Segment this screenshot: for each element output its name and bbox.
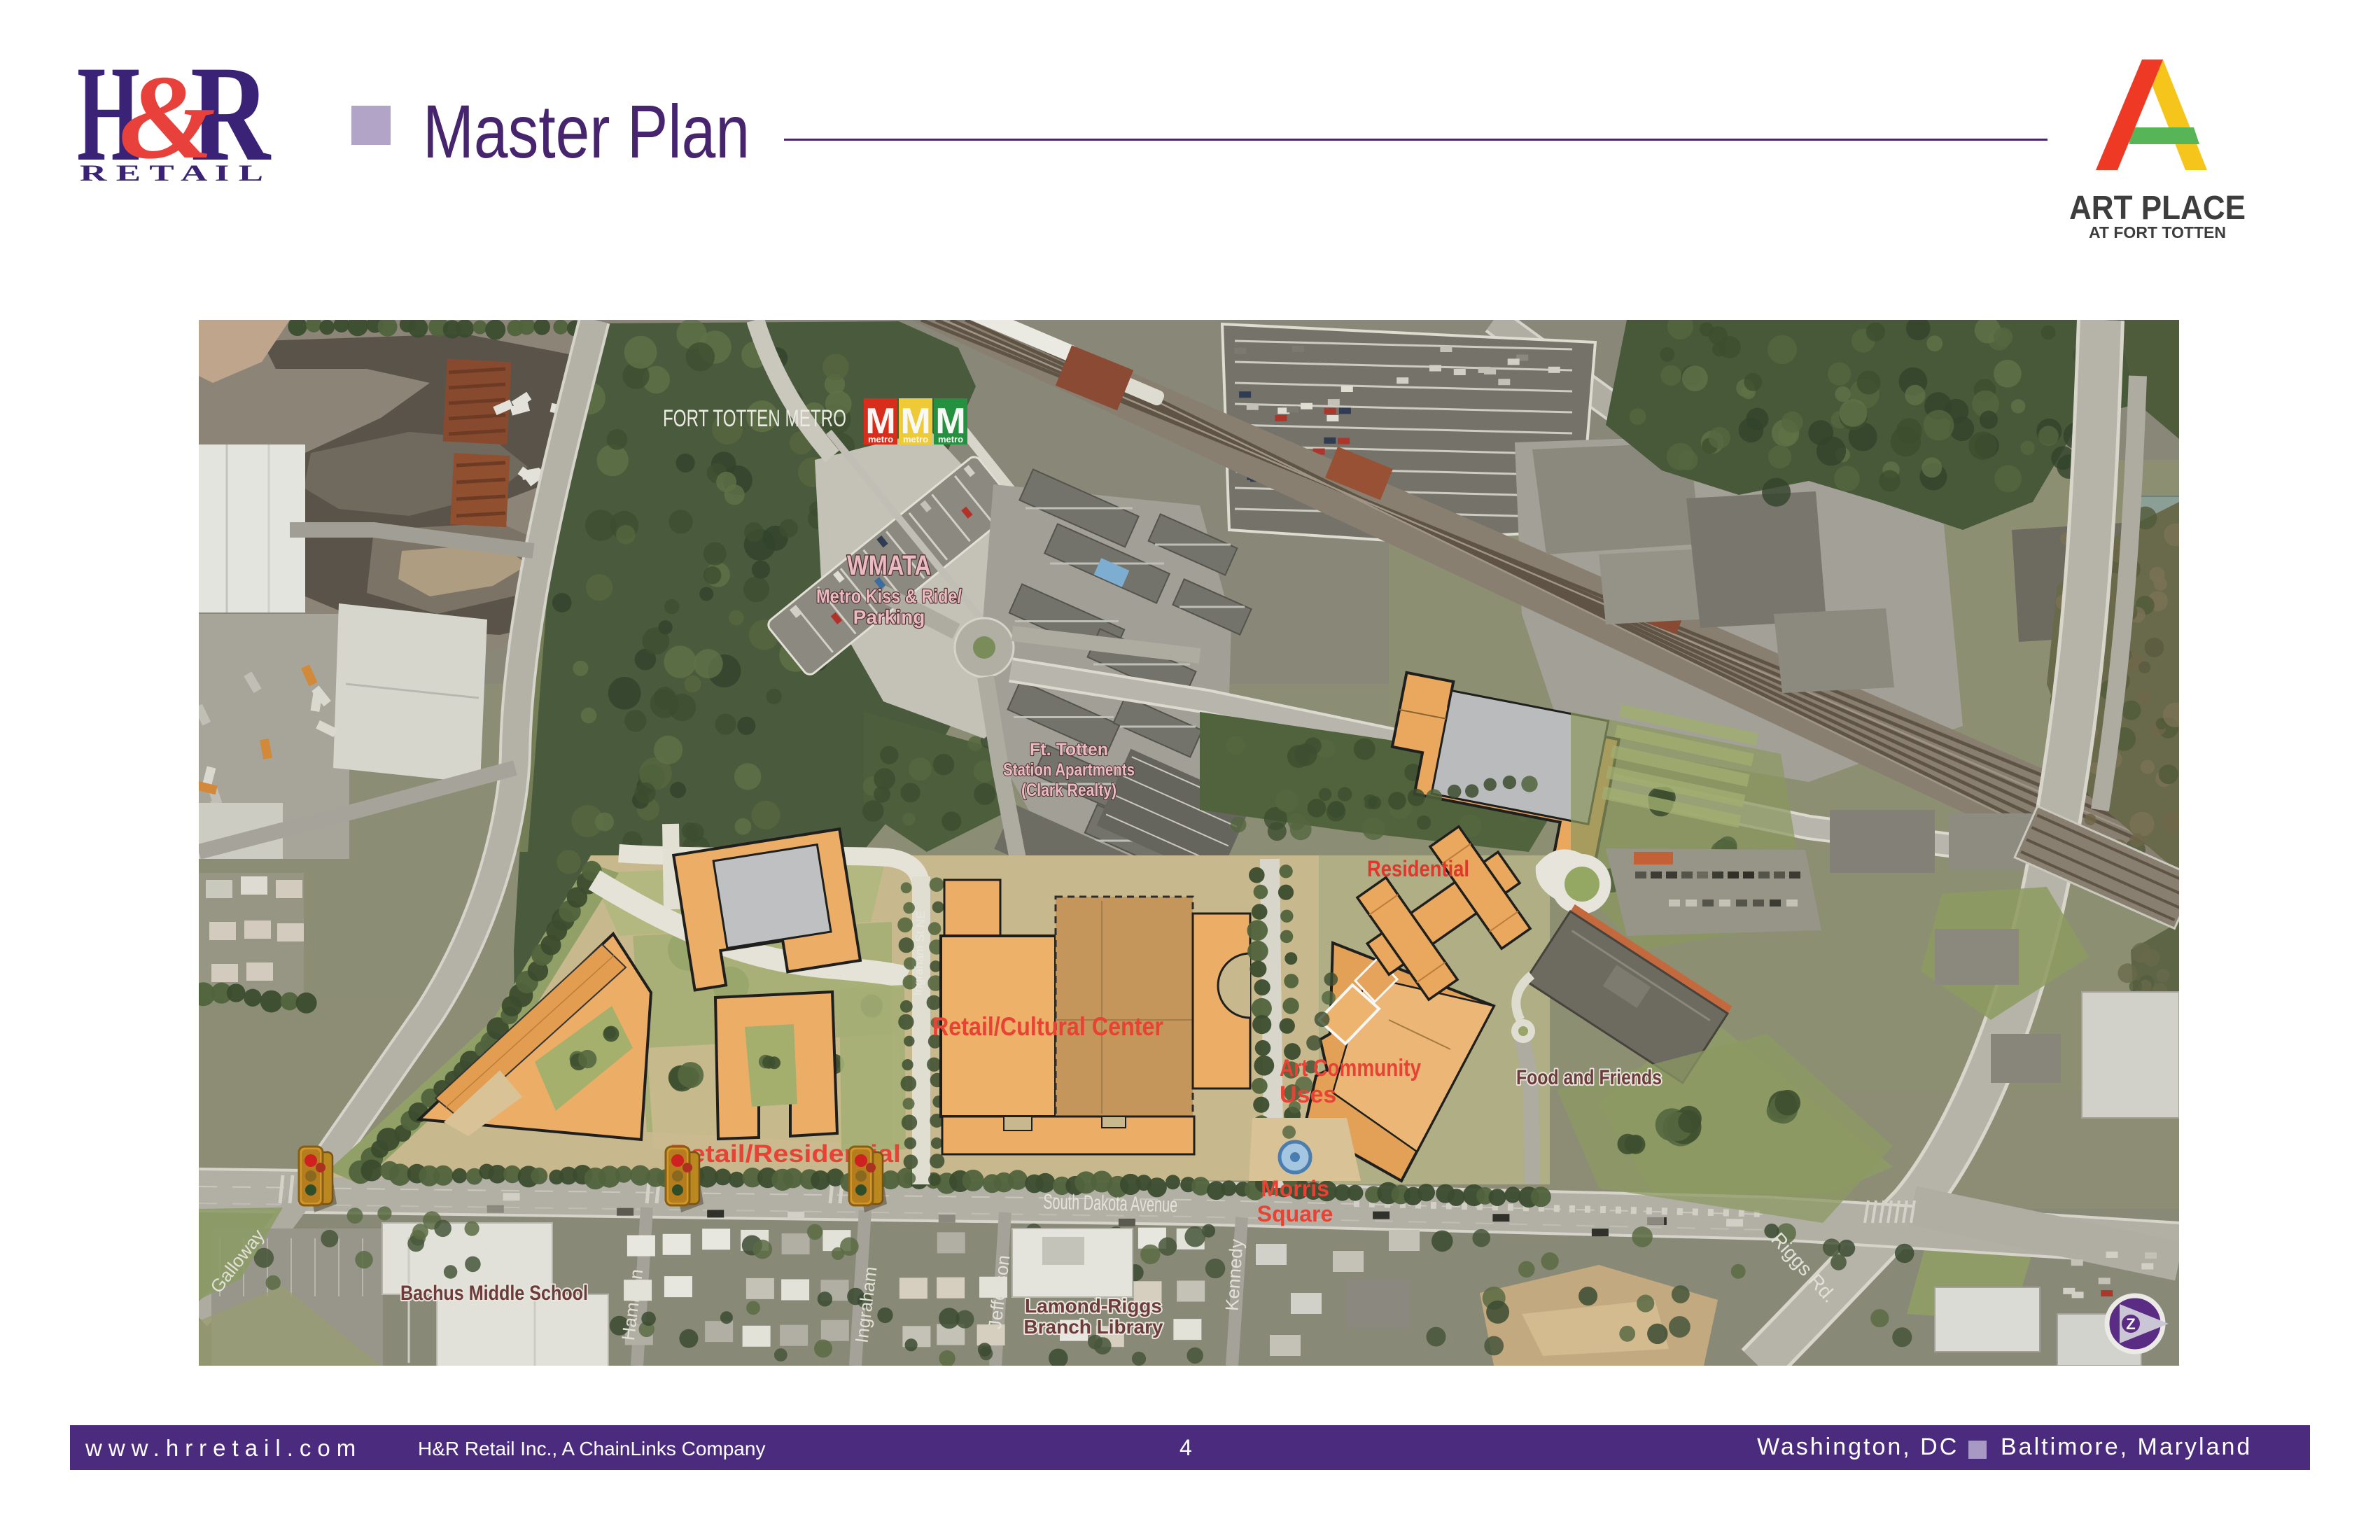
svg-text:ART PLACE: ART PLACE xyxy=(2069,190,2246,227)
svg-text:R E T A I L: R E T A I L xyxy=(80,161,263,186)
svg-text:AT FORT TOTTEN: AT FORT TOTTEN xyxy=(2089,223,2226,241)
svg-text:Master Plan: Master Plan xyxy=(423,89,750,174)
